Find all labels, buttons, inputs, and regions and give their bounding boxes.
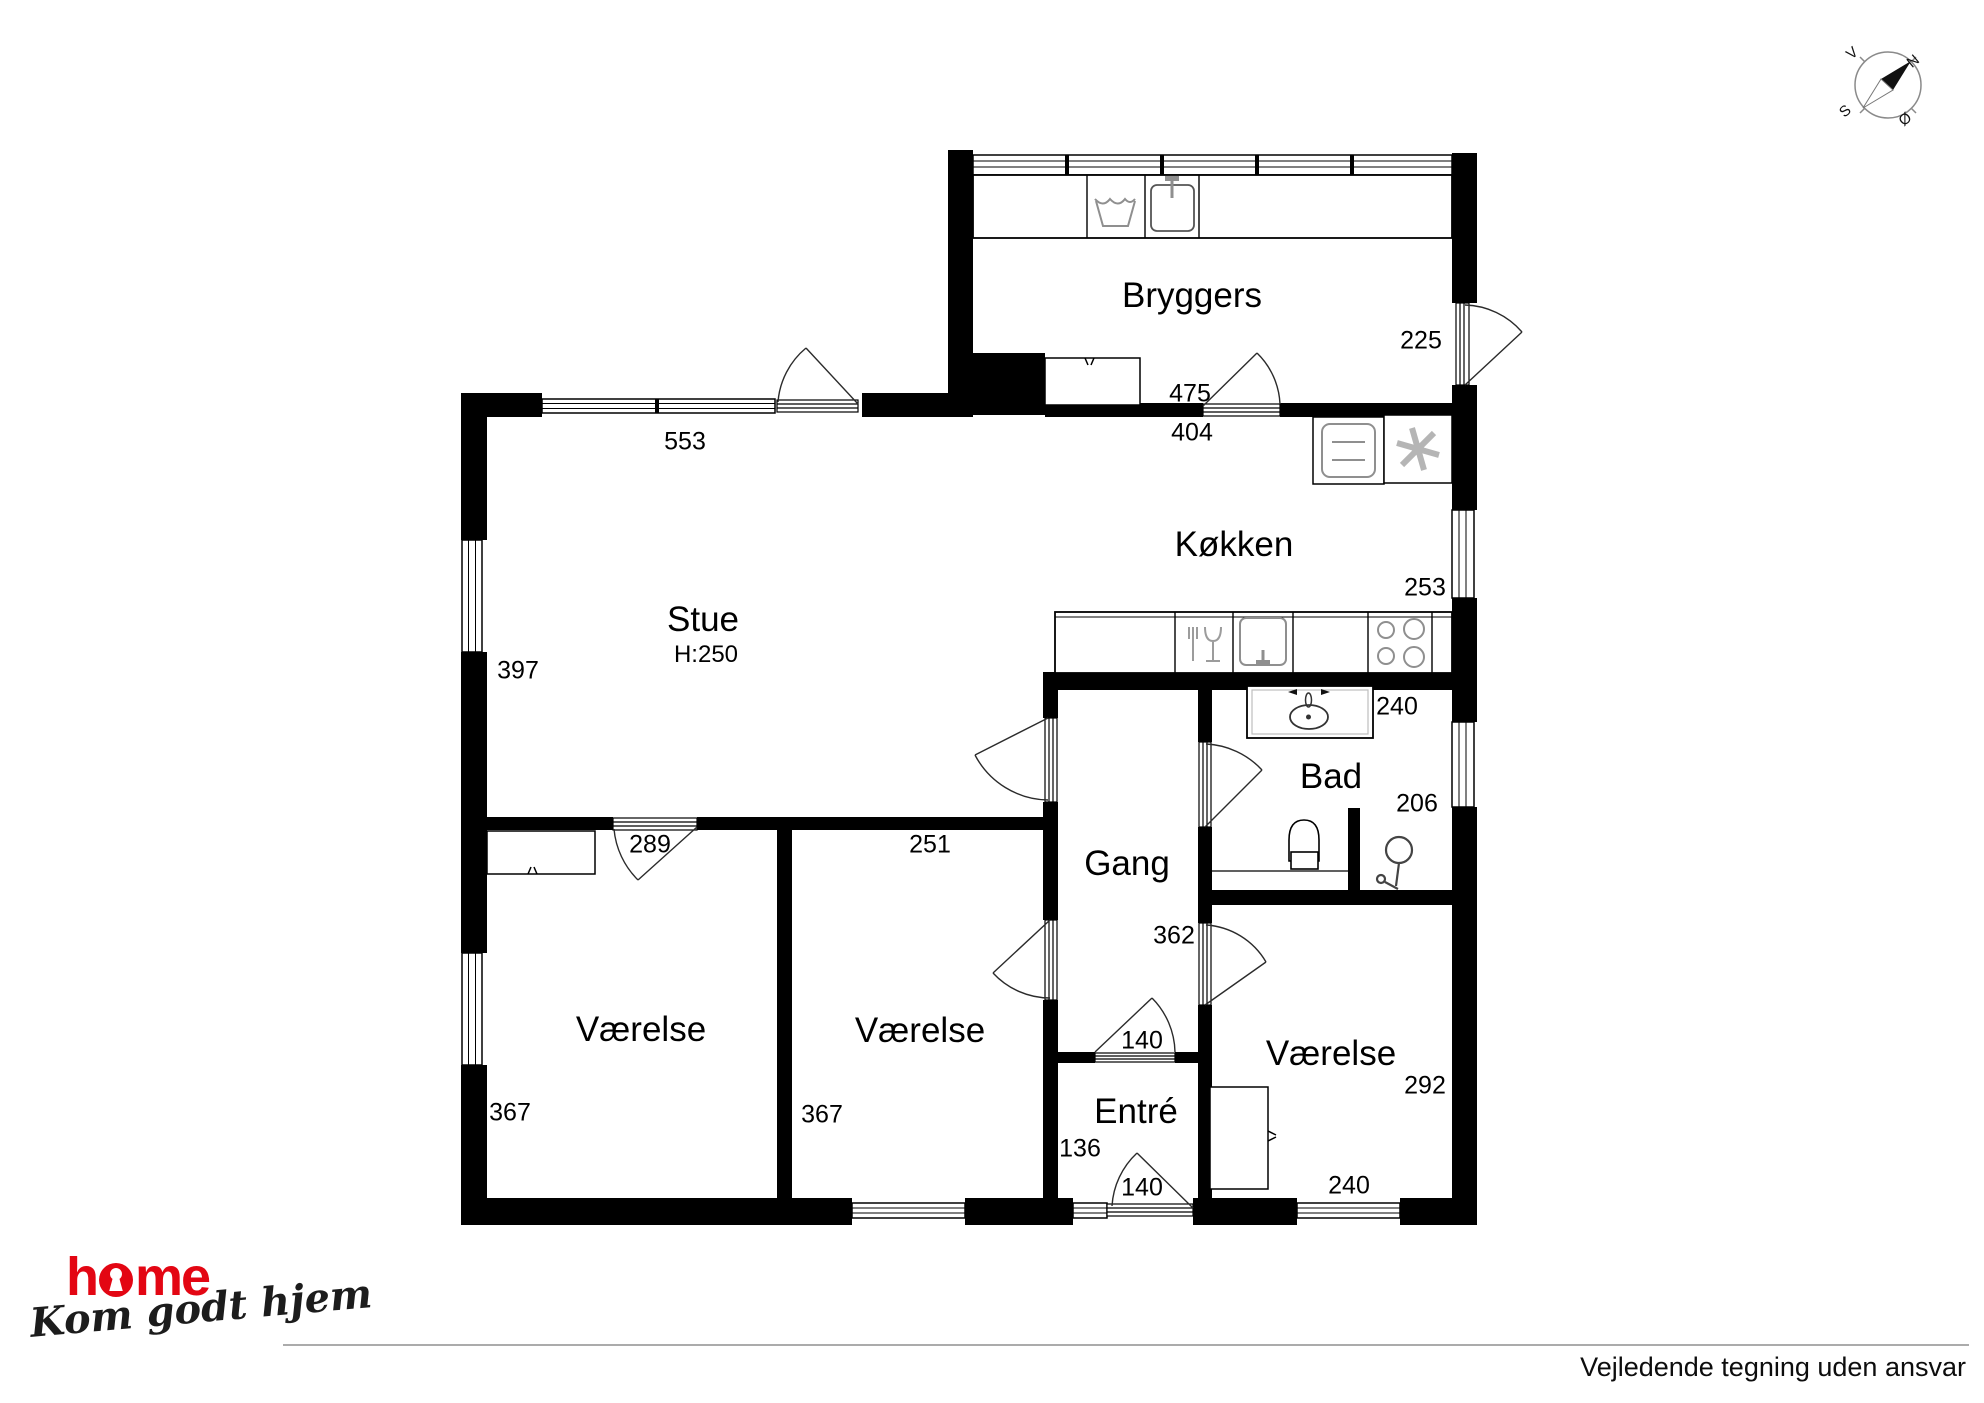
measurement-stue-left: 397 [497,657,539,686]
measurement-vaerelse-left-door: 289 [629,831,671,860]
floor-plan-drawing: V N S Ø [0,0,1984,1403]
compass-label-south: S [1836,102,1855,121]
fridge-icon [1313,417,1384,484]
freezer-icon [1384,415,1452,483]
bedroom-cabinet [487,831,595,874]
window [1073,1203,1107,1218]
window [1452,510,1474,598]
bryggers-counter [973,175,1452,238]
compass-label-north: N [1904,51,1923,71]
room-label-vaerelse-left: Værelse [576,1010,706,1050]
measurement-bryggers-right: 225 [1400,327,1442,356]
measurement-entre-door-bottom: 140 [1121,1174,1163,1203]
measurement-bad-top: 240 [1376,693,1418,722]
room-label-koekken: Køkken [1175,525,1294,565]
measurement-vaerelse-mid-depth: 367 [801,1101,843,1130]
measurement-stue-top: 553 [664,428,706,457]
compass-label-east: Ø [1895,109,1915,130]
window [462,953,482,1065]
room-label-entre: Entré [1094,1092,1178,1132]
kitchen-counter [1055,612,1452,673]
room-label-bad: Bad [1300,757,1362,797]
utility-sink-icon [1151,176,1194,231]
measurement-entre-door-top: 140 [1121,1027,1163,1056]
window-band [542,399,775,413]
room-height-stue: H:250 [674,641,738,669]
measurement-vaerelse-right-depth: 292 [1404,1072,1446,1101]
window [852,1203,965,1218]
measurement-vaerelse-mid-top: 251 [909,831,951,860]
bryggers-cabinet [1045,358,1140,405]
measurement-koekken-right: 253 [1404,574,1446,603]
compass-rose: V N S Ø [1836,44,1923,130]
room-label-vaerelse-mid: Værelse [855,1011,985,1051]
measurement-bad-right: 206 [1396,790,1438,819]
measurement-koekken-top: 404 [1171,419,1213,448]
window [1452,722,1474,807]
footer-divider-line [283,1344,1969,1346]
measurement-gang-depth: 362 [1153,922,1195,951]
floor-plan-page: V N S Ø Bryggers Køkken Stue H:250 Gang … [0,0,1984,1403]
measurement-vaerelse-left-depth: 367 [489,1099,531,1128]
wardrobe [1210,1087,1276,1189]
measurement-bryggers-bottom: 475 [1169,380,1211,409]
window [1297,1203,1400,1218]
room-label-stue: Stue [667,600,739,640]
disclaimer-text: Vejledende tegning uden ansvar [1580,1352,1966,1383]
compass-label-west: V [1843,44,1862,63]
bath-sink-icon [1247,686,1373,738]
room-label-vaerelse-right: Værelse [1266,1034,1396,1074]
room-label-gang: Gang [1084,844,1170,884]
toilet-icon [1289,820,1319,869]
window-band [973,155,1452,175]
measurement-vaerelse-right-bottom: 240 [1328,1172,1370,1201]
measurement-entre-width: 136 [1059,1135,1101,1164]
room-label-bryggers: Bryggers [1122,276,1262,316]
window [462,540,482,652]
